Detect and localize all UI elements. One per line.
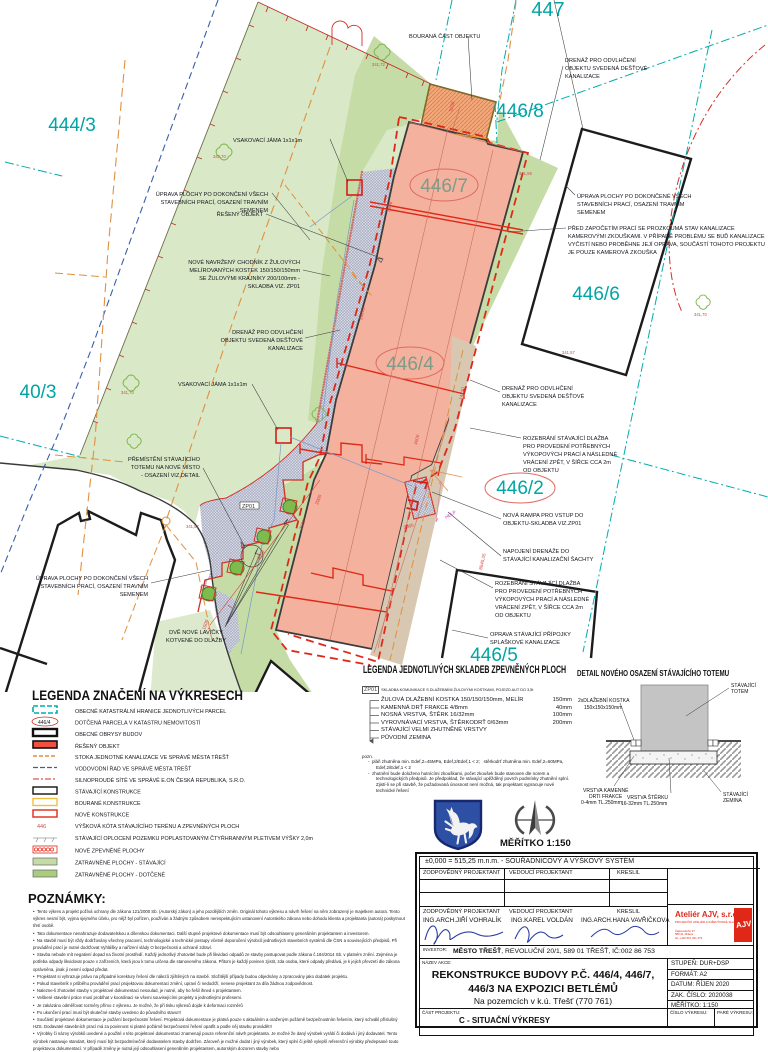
svg-text:NOVÉ ZPEVNĚNÉ PLOCHY: NOVÉ ZPEVNĚNÉ PLOCHY — [75, 847, 145, 855]
svg-text:KANALIZACE: KANALIZACE — [502, 402, 537, 408]
svg-text:OBJEKTU SVEDENÁ DEŠŤOVÉ: OBJEKTU SVEDENÁ DEŠŤOVÉ — [221, 336, 304, 344]
svg-text:446: 446 — [37, 824, 46, 830]
svg-text:VODOVODNÍ ŘAD VE SPRÁVĚ MĚSTA: VODOVODNÍ ŘAD VE SPRÁVĚ MĚSTA TŘEŠŤ — [75, 765, 192, 773]
svg-text:ZEMINA: ZEMINA — [723, 798, 743, 804]
svg-text:OBJEKTU-SKLADBA VIZ.ZP01: OBJEKTU-SKLADBA VIZ.ZP01 — [503, 521, 581, 527]
svg-text:446/6: 446/6 — [572, 284, 620, 305]
svg-text:OBJEKTU SVEDENÁ DEŠŤOVÉ: OBJEKTU SVEDENÁ DEŠŤOVÉ — [565, 64, 648, 72]
svg-text:446/7: 446/7 — [420, 176, 468, 197]
svg-text:ROZEBRÁNÍ STÁVAJÍCÍ DLAŽBA: ROZEBRÁNÍ STÁVAJÍCÍ DLAŽBA — [523, 434, 609, 442]
svg-text:341,70: 341,70 — [213, 154, 226, 159]
svg-text:STAVEBNÍCH PRACÍ, OSAZENÍ TRAV: STAVEBNÍCH PRACÍ, OSAZENÍ TRAVNÍM — [41, 583, 149, 590]
svg-text:VSAKOVACÍ JÁMA 1x1x1m: VSAKOVACÍ JÁMA 1x1x1m — [178, 381, 248, 388]
svg-text:2xDLAŽEBNÍ KOSTKA: 2xDLAŽEBNÍ KOSTKA — [578, 696, 630, 704]
svg-text:446/5: 446/5 — [470, 645, 518, 666]
svg-text:OBECNĚ KATASTRÁLNÍ HRANICE JED: OBECNĚ KATASTRÁLNÍ HRANICE JEDNOTLIVÝCH … — [75, 707, 226, 715]
svg-text:MELÍROVANÝCH KOSTEK 150/150/15: MELÍROVANÝCH KOSTEK 150/150/150mm — [189, 267, 300, 274]
svg-text:446/4: 446/4 — [386, 354, 434, 375]
svg-text:0-4mm TL.250mm: 0-4mm TL.250mm — [581, 800, 622, 806]
svg-text:STAVEBNÍCH PRACÍ, OSAZENÍ TRAV: STAVEBNÍCH PRACÍ, OSAZENÍ TRAVNÍM — [577, 201, 685, 208]
svg-text:ÚPRAVA PLOCHY PO DOKONČENÉ VŠE: ÚPRAVA PLOCHY PO DOKONČENÉ VŠECH — [577, 193, 691, 200]
svg-text:SKLADBA VIZ. ZP01: SKLADBA VIZ. ZP01 — [248, 284, 300, 290]
svg-text:KANALIZACE: KANALIZACE — [565, 74, 600, 80]
svg-text:STÁVAJÍCÍ KANALIZAČNÍ ŠACHTY: STÁVAJÍCÍ KANALIZAČNÍ ŠACHTY — [503, 556, 594, 563]
svg-text:TOTEMU NA NOVÉ MÍSTO: TOTEMU NA NOVÉ MÍSTO — [131, 464, 201, 471]
svg-text:OD OBJEKTU: OD OBJEKTU — [523, 468, 559, 474]
svg-text:VÝŠKOVÁ KÓTA STÁVAJÍCÍHO TERÉN: VÝŠKOVÁ KÓTA STÁVAJÍCÍHO TERÉNU A ZPEVNĚ… — [75, 822, 239, 830]
svg-text:PRO PROVEDENÍ POTŘEBNÝCH: PRO PROVEDENÍ POTŘEBNÝCH — [495, 587, 582, 595]
svg-text:BOURANÉ KONSTRUKCE: BOURANÉ KONSTRUKCE — [75, 800, 141, 807]
svg-text:OBECNÉ OBRYSY BUDOV: OBECNÉ OBRYSY BUDOV — [75, 731, 143, 738]
svg-text:STÁVAJÍCÍ: STÁVAJÍCÍ — [723, 791, 749, 798]
svg-text:341,72: 341,72 — [372, 62, 385, 67]
svg-text:341,70: 341,70 — [121, 390, 134, 395]
svg-text:150x150x150mm: 150x150x150mm — [584, 705, 622, 711]
svg-text:SILNOPROUDÉ SÍTĚ VE SPRÁVĚ E.O: SILNOPROUDÉ SÍTĚ VE SPRÁVĚ E.ON ČESKÁ RE… — [75, 776, 245, 784]
svg-text:SE ŽULOVÝMI KRAJNÍKY 200/100mm: SE ŽULOVÝMI KRAJNÍKY 200/100mm - — [199, 274, 300, 282]
svg-text:DRENÁŽ PRO ODVLHČENÍ: DRENÁŽ PRO ODVLHČENÍ — [502, 384, 573, 392]
svg-text:KANALIZACE: KANALIZACE — [268, 346, 303, 352]
svg-text:VÝKOPOVÝCH PRACÍ A NÁSLEDNÉ: VÝKOPOVÝCH PRACÍ A NÁSLEDNÉ — [523, 451, 617, 458]
svg-text:NOVÉ KONSTRUKCE: NOVÉ KONSTRUKCE — [75, 812, 130, 819]
svg-text:KAMEROVÝMI ZKOUŠKAMI. V PŘÍPAD: KAMEROVÝMI ZKOUŠKAMI. V PŘÍPADĚ PROBLÉMU… — [568, 232, 765, 240]
svg-text:OBJEKTU SVEDENÁ DEŠŤOVÉ: OBJEKTU SVEDENÁ DEŠŤOVÉ — [502, 392, 585, 400]
svg-text:VYČISTÍ NEBO PROBĚHNE JEJÍ OPR: VYČISTÍ NEBO PROBĚHNE JEJÍ OPRAVA, SOUČÁ… — [568, 240, 765, 248]
svg-text:446/4: 446/4 — [38, 720, 51, 726]
svg-text:STÁVAJÍCÍ OPLOCENÍ POZEMKU POP: STÁVAJÍCÍ OPLOCENÍ POZEMKU POPLASTOVANÝM… — [75, 834, 314, 842]
svg-text:ZATRAVNĚNÉ PLOCHY - STÁVAJÍCÍ: ZATRAVNĚNÉ PLOCHY - STÁVAJÍCÍ — [75, 859, 166, 867]
svg-text:- OSAZENÍ VIZ.DETAIL: - OSAZENÍ VIZ.DETAIL — [141, 472, 200, 479]
svg-text:VRSTVA ŠTĚRKU: VRSTVA ŠTĚRKU — [627, 793, 668, 801]
svg-text:STÁVAJÍCÍ KONSTRUKCE: STÁVAJÍCÍ KONSTRUKCE — [75, 789, 141, 796]
svg-text:SPLAŠKOVÉ KANALIZACE: SPLAŠKOVÉ KANALIZACE — [490, 639, 560, 646]
svg-text:DRENÁŽ PRO ODVLHČENÍ: DRENÁŽ PRO ODVLHČENÍ — [565, 56, 636, 64]
svg-text:VRSTVA KAMENNÉ: VRSTVA KAMENNÉ — [583, 787, 629, 794]
svg-text:341,87: 341,87 — [186, 524, 199, 529]
svg-text:446/2: 446/2 — [496, 478, 544, 499]
svg-text:ŘEŠENÝ OBJEKT: ŘEŠENÝ OBJEKT — [217, 210, 264, 218]
svg-text:STOKA JEDNOTNÉ KANALIZACE VE S: STOKA JEDNOTNÉ KANALIZACE VE SPRÁVĚ MĚST… — [75, 753, 230, 761]
svg-text:SEMENEM: SEMENEM — [120, 592, 149, 598]
svg-text:16-32mm TL.250mm: 16-32mm TL.250mm — [621, 801, 667, 807]
svg-text:ÚPRAVA PLOCHY PO DOKONČENÍ VŠE: ÚPRAVA PLOCHY PO DOKONČENÍ VŠECH — [36, 575, 148, 582]
svg-text:OPRAVA STÁVAJÍCÍ PŘÍPOJKY: OPRAVA STÁVAJÍCÍ PŘÍPOJKY — [490, 630, 571, 638]
svg-text:ŘEŠENÝ OBJEKT: ŘEŠENÝ OBJEKT — [75, 742, 120, 750]
svg-text:STAVEBNÍCH PRACÍ, OSAZENÍ TRAV: STAVEBNÍCH PRACÍ, OSAZENÍ TRAVNÍM — [161, 199, 269, 206]
svg-text:NAPOJENÍ DRENÁŽE DO: NAPOJENÍ DRENÁŽE DO — [503, 547, 570, 555]
svg-text:VSAKOVACÍ JÁMA 1x1x1m: VSAKOVACÍ JÁMA 1x1x1m — [233, 137, 303, 144]
svg-text:STÁVAJÍCÍ: STÁVAJÍCÍ — [731, 682, 757, 689]
svg-text:444/3: 444/3 — [48, 115, 96, 136]
svg-text:NOVÉ NAVRŽENÝ CHODNÍK Z ŽULOV: NOVÉ NAVRŽENÝ CHODNÍK Z ŽULOVÝCH — [188, 258, 300, 266]
svg-text:PŘED ZAPOČETÍM PRACÍ SE PROZKO: PŘED ZAPOČETÍM PRACÍ SE PROZKOUMÁ STAV K… — [568, 224, 735, 232]
svg-text:PRO PROVEDENÍ POTŘEBNÝCH: PRO PROVEDENÍ POTŘEBNÝCH — [523, 442, 610, 450]
svg-text:PŘEMÍSTĚNÍ STÁVAJÍCÍHO: PŘEMÍSTĚNÍ STÁVAJÍCÍHO — [128, 455, 201, 463]
svg-text:ZP01: ZP01 — [242, 504, 255, 510]
svg-text:40/3: 40/3 — [20, 382, 57, 403]
svg-text:OD OBJEKTU: OD OBJEKTU — [495, 613, 531, 619]
svg-text:VRÁCENÍ ZPĚT, V ŠÍŘCE CCA 2m: VRÁCENÍ ZPĚT, V ŠÍŘCE CCA 2m — [523, 458, 611, 466]
svg-text:341,59: 341,59 — [519, 171, 532, 176]
svg-text:VÝKOPOVÝCH PRACÍ A NÁSLEDNÉ: VÝKOPOVÝCH PRACÍ A NÁSLEDNÉ — [495, 596, 589, 603]
svg-text:VRÁCENÍ ZPĚT, V ŠÍŘCE CCA 2m: VRÁCENÍ ZPĚT, V ŠÍŘCE CCA 2m — [495, 603, 583, 611]
svg-text:341,70: 341,70 — [694, 312, 707, 317]
svg-text:DVĚ NOVÉ LAVIČKY: DVĚ NOVÉ LAVIČKY — [169, 628, 223, 636]
svg-text:BOURANÁ ČÁST OBJEKTU: BOURANÁ ČÁST OBJEKTU — [409, 33, 480, 40]
svg-text:NOVÁ RAMPA PRO VSTUP DO: NOVÁ RAMPA PRO VSTUP DO — [503, 512, 584, 519]
svg-text:446/8: 446/8 — [496, 101, 544, 122]
svg-text:ÚPRAVA PLOCHY PO DOKONČENÍ VŠE: ÚPRAVA PLOCHY PO DOKONČENÍ VŠECH — [156, 191, 268, 198]
svg-text:447: 447 — [531, 0, 564, 21]
svg-text:341,57: 341,57 — [562, 350, 575, 355]
svg-text:DOTČENÁ PARCELA V KATASTRU NEM: DOTČENÁ PARCELA V KATASTRU NEMOVITOSTÍ — [75, 720, 201, 727]
svg-text:SEMENEM: SEMENEM — [577, 210, 606, 216]
svg-text:ZATRAVNĚNÉ PLOCHY - DOTČENÉ: ZATRAVNĚNÉ PLOCHY - DOTČENÉ — [75, 871, 166, 879]
svg-text:KOTVENÉ DO DLAŽBY: KOTVENÉ DO DLAŽBY — [166, 636, 226, 644]
svg-text:TOTEM: TOTEM — [731, 689, 748, 695]
svg-text:DRENÁŽ PRO ODVLHČENÍ: DRENÁŽ PRO ODVLHČENÍ — [232, 328, 303, 336]
svg-text:ROZEBRÁNÍ STÁVAJÍCÍ DLAŽBA: ROZEBRÁNÍ STÁVAJÍCÍ DLAŽBA — [495, 579, 581, 587]
svg-text:JE POUZE KAMEROVÁ ZKOUŠKA: JE POUZE KAMEROVÁ ZKOUŠKA — [568, 249, 657, 256]
